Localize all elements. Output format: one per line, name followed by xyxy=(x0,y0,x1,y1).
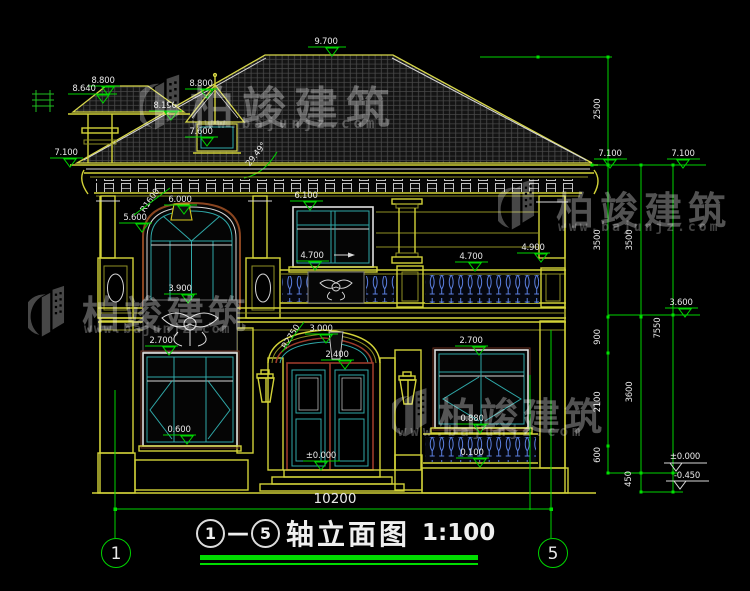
axis-bubble-5: 5 xyxy=(539,539,568,568)
stone-base xyxy=(135,460,248,490)
level-mark: 9.700 xyxy=(308,37,346,56)
level-label: 8.190 xyxy=(153,101,176,111)
level-mark: 4.700 xyxy=(455,252,488,271)
level-label: 7.100 xyxy=(671,149,694,159)
level-label: 6.100 xyxy=(294,191,317,201)
level-label: 6.000 xyxy=(168,195,191,205)
door-jamb-quoin-left xyxy=(268,358,283,470)
level-label: ±0.000 xyxy=(670,452,700,462)
level-label: 8.800 xyxy=(189,79,212,89)
level-mark: 3.600 xyxy=(665,298,698,317)
axis-number: 5 xyxy=(548,544,559,564)
pilaster-1f-left xyxy=(100,321,133,453)
level-label: 0.600 xyxy=(167,425,190,435)
level-label: 4.700 xyxy=(459,252,482,262)
title-text: 轴立面图 xyxy=(286,513,410,553)
dim-vertical: 900 xyxy=(593,329,603,345)
level-mark: 7.100 xyxy=(50,148,83,167)
entry-steps xyxy=(260,470,404,491)
level-label: 0.880 xyxy=(460,414,483,424)
level-label: 0.100 xyxy=(460,448,483,458)
level-label: 3.900 xyxy=(168,284,191,294)
dim-vertical: 3500 xyxy=(625,230,635,251)
level-mark: 2.400 xyxy=(321,350,354,369)
elevation-drawing: 29.49° xyxy=(0,0,750,591)
level-label: 3.000 xyxy=(309,324,332,334)
level-label: 2.700 xyxy=(149,336,172,346)
level-label: 8.640 xyxy=(72,84,95,94)
wall-lamp-left xyxy=(257,370,274,402)
level-label: -0.450 xyxy=(674,471,700,481)
level-label: 7.100 xyxy=(54,148,77,158)
dim-vertical: 3500 xyxy=(593,230,603,251)
level-label: 4.700 xyxy=(300,251,323,261)
roof-finial-trellis xyxy=(32,90,54,112)
dim-vertical: 2100 xyxy=(593,392,603,413)
level-mark: ±0.000 xyxy=(664,452,707,471)
drawing-title: 1 — 5 轴立面图 1:100 xyxy=(196,514,495,552)
total-width-label: 10200 xyxy=(314,491,357,507)
balcony-pedestal xyxy=(397,266,423,307)
title-scale: 1:100 xyxy=(422,520,495,546)
baluster-run xyxy=(366,276,394,302)
level-mark: 4.900 xyxy=(517,243,550,262)
dim-vertical: 600 xyxy=(593,447,603,463)
pilaster-2f-mid xyxy=(248,196,272,258)
title-dash: — xyxy=(227,521,249,546)
baluster-run xyxy=(425,275,539,303)
entry-door xyxy=(268,330,380,470)
center-window-2f xyxy=(289,207,377,272)
title-underline-thin xyxy=(200,563,478,565)
wall-lamp-right xyxy=(399,372,416,404)
level-label: ±0.000 xyxy=(306,451,336,461)
level-label: 4.900 xyxy=(521,243,544,253)
level-label: 7.100 xyxy=(598,149,621,159)
dim-vertical: 7550 xyxy=(653,318,663,339)
title-axis-end-bubble: 5 xyxy=(251,519,280,548)
level-label: 7.600 xyxy=(189,127,212,137)
pilaster-1f-corner-right xyxy=(540,321,565,468)
dim-vertical: 450 xyxy=(624,471,634,487)
level-label: 3.600 xyxy=(669,298,692,308)
level-label: 9.700 xyxy=(314,37,337,47)
pedestal-2f-left xyxy=(98,258,133,318)
title-underline-thick xyxy=(200,555,478,560)
door-leaf-right xyxy=(335,370,368,466)
baluster-run xyxy=(282,276,308,302)
title-axis-start-bubble: 1 xyxy=(196,519,225,548)
stone-base xyxy=(422,468,568,493)
level-label: 2.400 xyxy=(325,350,348,360)
level-mark: ±0.000 xyxy=(303,451,340,470)
pedestal-2f-mid xyxy=(246,258,280,318)
level-label: 2.700 xyxy=(459,336,482,346)
axis-number: 1 xyxy=(111,544,122,564)
stone-base xyxy=(395,455,422,490)
dim-vertical: 2500 xyxy=(593,99,603,120)
axis-bubble-1: 1 xyxy=(102,539,131,568)
door-jamb-quoin-right xyxy=(380,358,395,470)
cad-elevation-sheet: 29.49° xyxy=(0,0,750,591)
second-floor-wall-lines xyxy=(376,212,538,247)
column-2f-right-of-window xyxy=(392,199,422,263)
pilaster-1f-right-of-door xyxy=(395,350,421,470)
stone-base xyxy=(98,453,135,493)
dim-vertical: 3600 xyxy=(625,382,635,403)
